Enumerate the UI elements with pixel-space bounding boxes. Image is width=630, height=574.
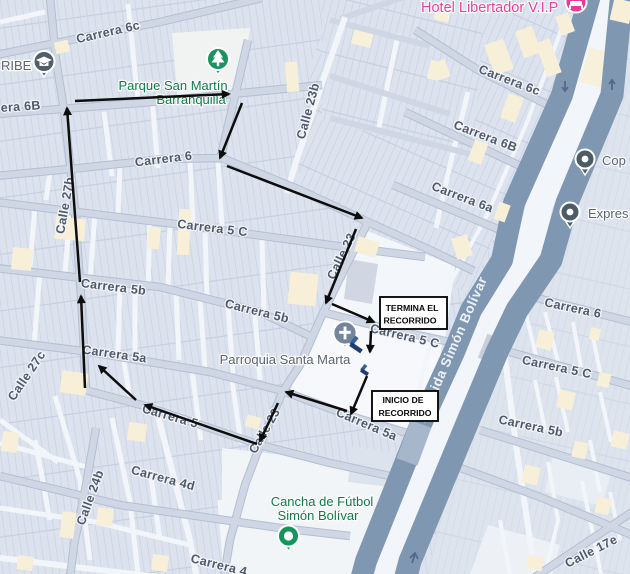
svg-text:RECORRIDO: RECORRIDO [378,408,431,418]
svg-text:RIBE: RIBE [1,58,32,73]
svg-text:RECORRIDO: RECORRIDO [383,316,436,326]
svg-text:era 6B: era 6B [0,98,41,115]
svg-text:Parque San Martín: Parque San Martín [118,78,227,93]
svg-text:Cop: Cop [602,153,626,168]
svg-text:INICIO DE: INICIO DE [382,395,423,405]
svg-text:Expres: Expres [588,206,629,221]
svg-text:TERMINA EL: TERMINA EL [386,303,439,313]
svg-text:Parroquia Santa Marta: Parroquia Santa Marta [220,352,352,367]
svg-text:Simón Bolívar: Simón Bolívar [278,508,360,523]
svg-text:Cancha de Fútbol: Cancha de Fútbol [271,494,374,509]
svg-text:Hotel Libertador V.I.P: Hotel Libertador V.I.P [421,0,558,16]
